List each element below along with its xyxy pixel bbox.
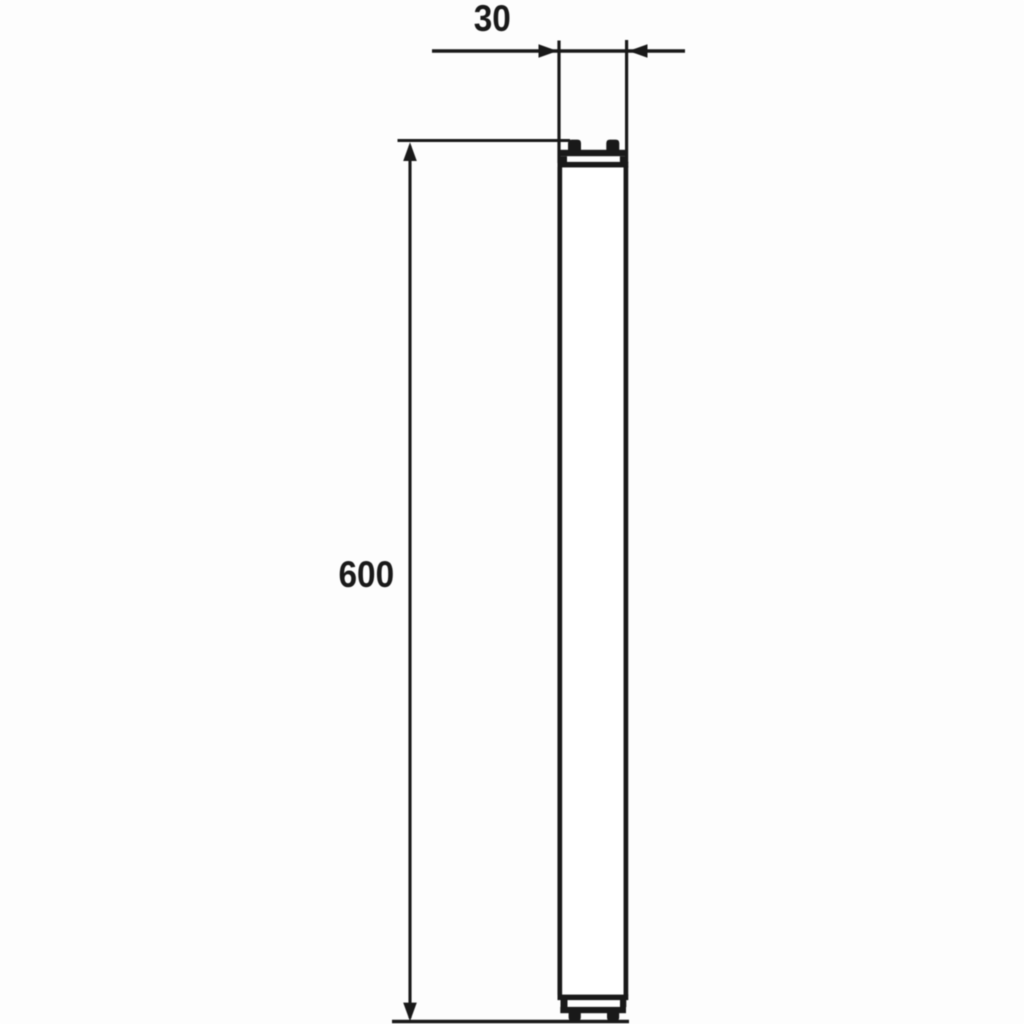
svg-text:600: 600: [338, 553, 394, 595]
svg-text:30: 30: [474, 0, 511, 40]
